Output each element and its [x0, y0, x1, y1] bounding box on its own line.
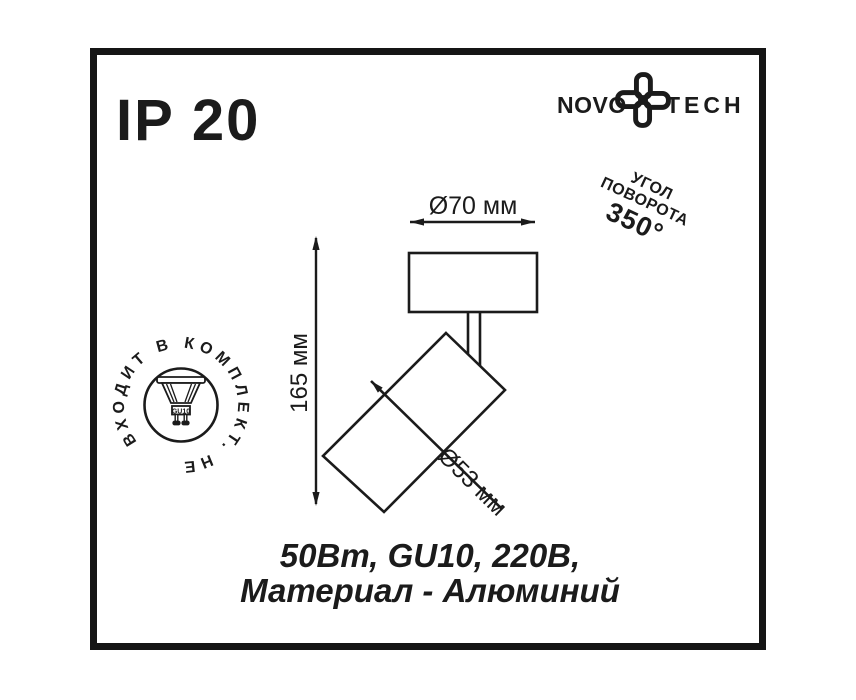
arrow-left-icon: [410, 218, 424, 225]
arrow-down-icon: [312, 492, 319, 506]
lamp-pin-foot: [173, 422, 179, 425]
fixture-base: [409, 253, 537, 312]
lamp-pin: [175, 415, 178, 422]
logo-text-tech: TECH: [666, 94, 745, 117]
lamp-pin-foot: [182, 422, 188, 425]
arrow-right-icon: [521, 218, 535, 225]
dimension-height-label: 165 мм: [287, 313, 313, 433]
dimension-top-label: Ø70 мм: [405, 194, 541, 219]
spec-line-material: Материал - Алюминий: [140, 573, 720, 608]
gu10-lamp-icon: [157, 377, 205, 425]
dimension-height: [312, 236, 319, 506]
lamp-not-included-stamp: ВХОДИТ В КОМПЛЕКТ. НЕ GU10: [111, 335, 251, 476]
logo-text-novo: NOVO: [557, 94, 627, 117]
ip-rating-label: IP 20: [116, 92, 260, 150]
spec-line-electrical: 50Вт, GU10, 220В,: [140, 538, 720, 573]
lamp-socket-label: GU10: [172, 409, 190, 416]
lamp-pin: [184, 415, 187, 422]
specifications: 50Вт, GU10, 220В, Материал - Алюминий: [140, 538, 720, 608]
arrow-up-icon: [312, 236, 319, 250]
fixture-drawing: [323, 253, 537, 512]
